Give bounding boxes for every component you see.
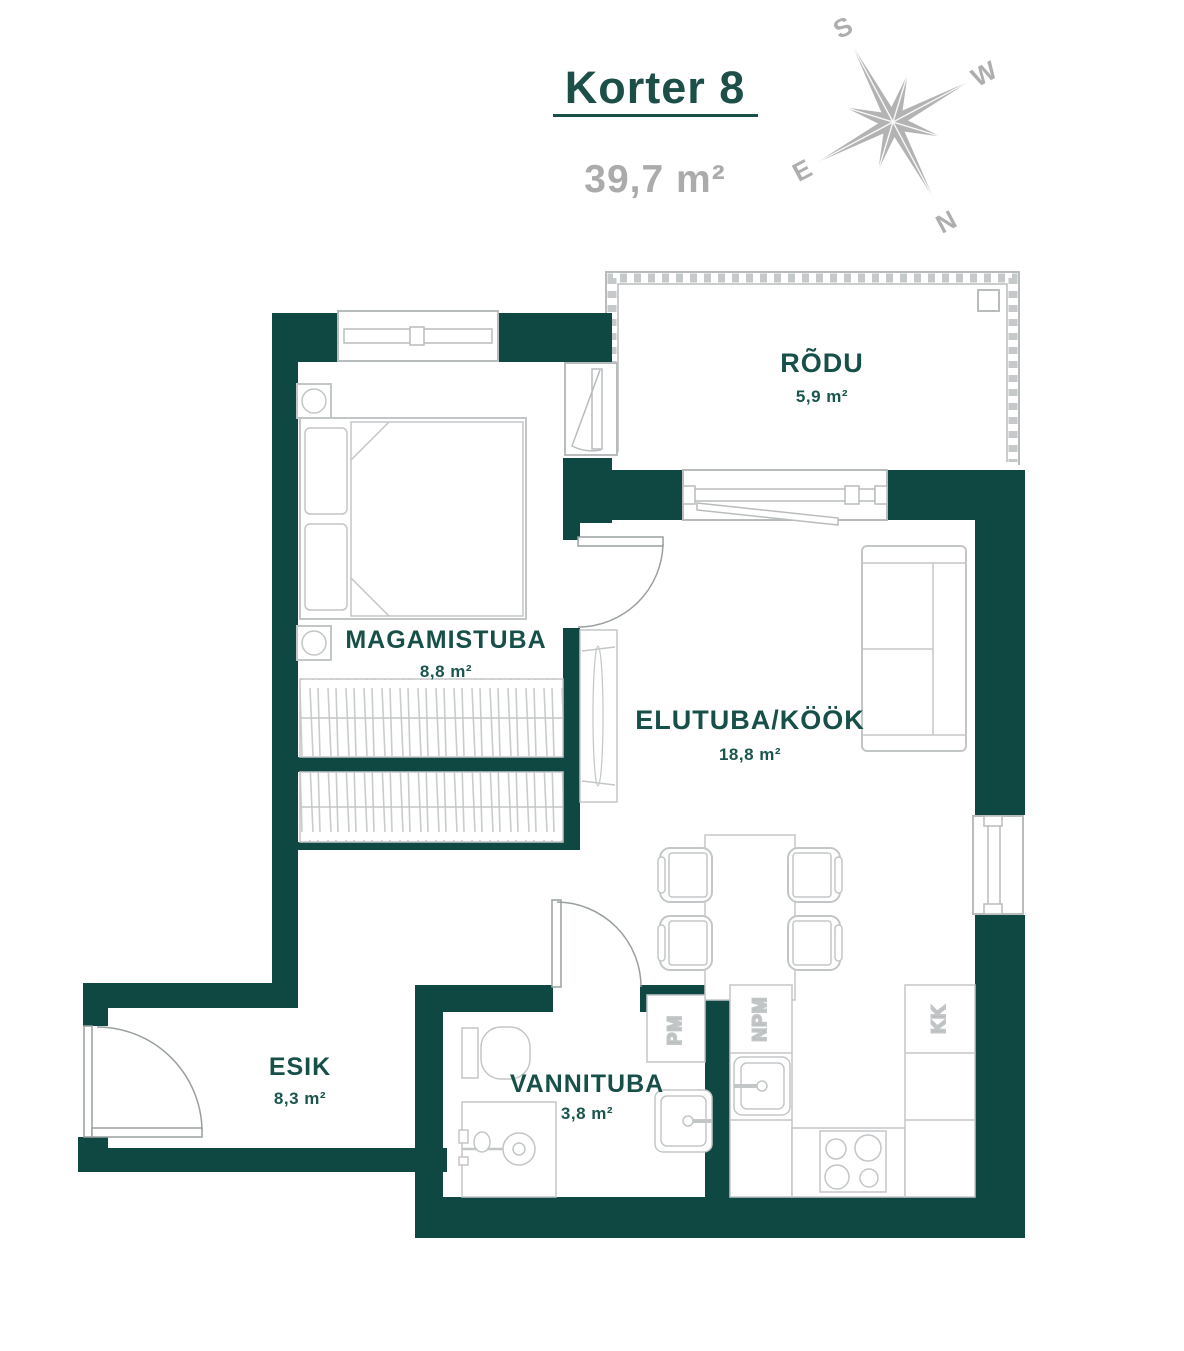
wardrobe (300, 679, 563, 757)
dining-chair (658, 848, 712, 902)
sofa (862, 546, 966, 751)
room-name-elutuba: ELUTUBA/KÖÖK (635, 705, 865, 735)
nightstand (297, 384, 331, 418)
total-area-label: 39,7 m² (584, 158, 725, 201)
room-name-magamistuba: MAGAMISTUBA (345, 626, 546, 654)
room-name-rodu: RÕDU (780, 347, 864, 378)
entry-door (84, 1026, 202, 1137)
dining-chair (788, 848, 842, 902)
wardrobe (300, 772, 563, 842)
title-underline (553, 114, 758, 117)
bathroom-sink (655, 1090, 712, 1152)
room-area-rodu: 5,9 m² (796, 387, 848, 406)
bathroom-door (552, 900, 641, 987)
dishwasher-label: NPM (750, 996, 771, 1041)
bedroom-tilt-window (565, 363, 617, 455)
fridge-label: KK (929, 1004, 950, 1033)
room-name-esik: ESIK (269, 1053, 331, 1081)
compass-rose: S W N E (737, 0, 1055, 287)
room-name-vannituba: VANNITUBA (510, 1070, 664, 1098)
page-title: Korter 8 (565, 62, 746, 113)
dining-chair (658, 916, 712, 970)
double-bed (300, 418, 526, 619)
floorplan-drawing: Korter 8 39,7 m² S W N E (0, 0, 1184, 1351)
bedroom-furniture (297, 384, 563, 842)
balcony-door (683, 470, 887, 525)
plan-header: Korter 8 39,7 m² (553, 62, 758, 201)
compass-south: S (828, 10, 857, 45)
balcony-drain-icon (978, 290, 999, 311)
living-room-window (973, 816, 1023, 914)
shower (459, 1102, 556, 1197)
room-area-elutuba: 18,8 m² (719, 745, 781, 764)
kitchen: NPM KK (730, 985, 975, 1197)
kitchen-sink (734, 1057, 790, 1115)
stove (820, 1131, 886, 1192)
drying-rack (580, 630, 617, 802)
floorplan-page: Korter 8 39,7 m² S W N E (0, 0, 1184, 1351)
nightstand (297, 626, 331, 660)
room-area-esik: 8,3 m² (274, 1089, 326, 1108)
compass-west: W (966, 54, 1002, 92)
bedroom-door (578, 537, 663, 627)
compass-east: E (787, 153, 816, 188)
room-area-vannituba: 3,8 m² (561, 1104, 613, 1123)
dining-table (705, 835, 795, 1000)
compass-north: N (931, 204, 962, 239)
room-area-magamistuba: 8,8 m² (420, 662, 472, 681)
living-room-furniture (580, 546, 966, 1000)
washing-machine-label: PM (665, 1015, 686, 1046)
dining-chair (788, 916, 842, 970)
bedroom-window (338, 311, 498, 361)
